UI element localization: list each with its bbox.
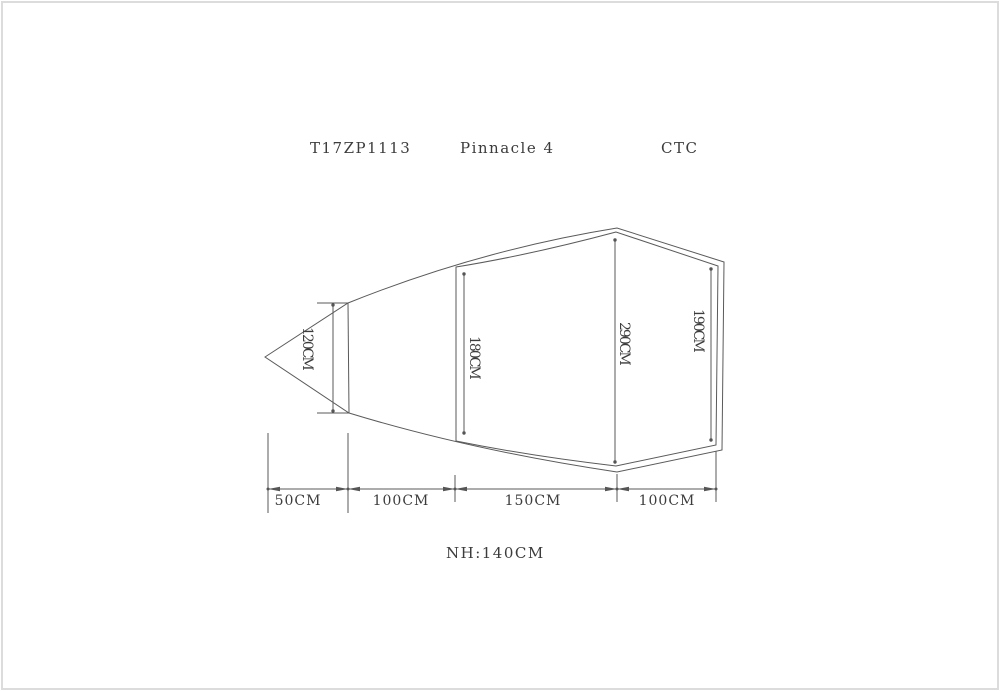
dim-label-rear-width: 190CM <box>690 309 706 351</box>
dim-label-body-length: 150CM <box>503 493 563 509</box>
dim-label-vestibule-width: 120CM <box>299 327 315 369</box>
dim-label-vestibule-length: 100CM <box>371 493 431 509</box>
dim-label-tip-length: 50CM <box>268 493 328 509</box>
tent-divider-line <box>348 303 349 413</box>
extension-lines <box>268 303 716 513</box>
tent-inner-outline <box>456 232 718 466</box>
tent-floorplan-svg <box>0 0 1000 691</box>
vertical-dimension-lines <box>331 238 712 463</box>
height-note: NH:140CM <box>446 544 545 562</box>
tent-outer-outline <box>265 228 724 472</box>
dim-label-rear-length: 100CM <box>637 493 697 509</box>
tent-dimension-drawing: T17ZP1113 Pinnacle 4 CTC <box>0 0 1000 691</box>
dim-label-inner-front-width: 180CM <box>466 336 482 378</box>
dim-label-max-width: 290CM <box>616 322 632 364</box>
bottom-dimension-chain <box>267 488 718 491</box>
